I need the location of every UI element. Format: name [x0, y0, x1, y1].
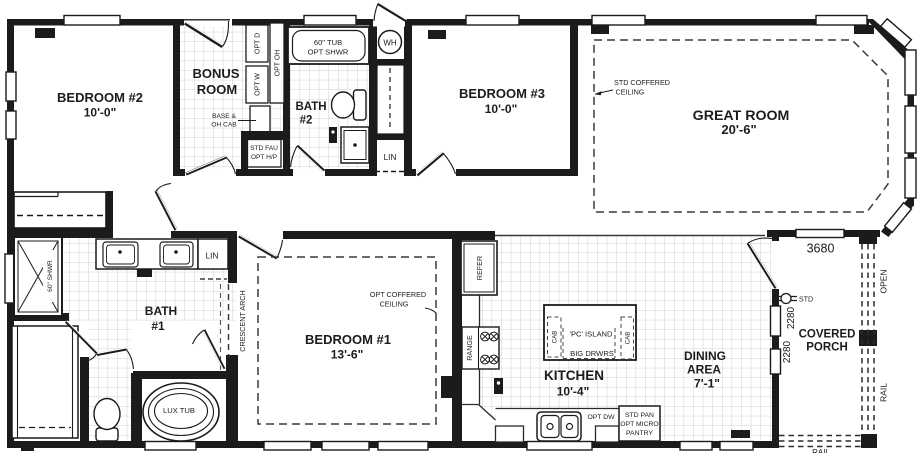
svg-text:LUX TUB: LUX TUB [163, 406, 195, 415]
svg-text:2280: 2280 [782, 340, 793, 363]
svg-text:CAB: CAB [552, 331, 559, 344]
svg-text:BATH: BATH [145, 304, 177, 318]
svg-text:RAIL: RAIL [812, 448, 830, 453]
svg-text:60" SHWR: 60" SHWR [47, 260, 54, 292]
svg-text:ROOM: ROOM [197, 82, 237, 97]
svg-text:STD PAN: STD PAN [625, 412, 654, 419]
svg-text:#1: #1 [151, 319, 165, 333]
svg-text:BEDROOM #3: BEDROOM #3 [459, 86, 545, 101]
svg-text:DINING: DINING [684, 349, 726, 363]
svg-text:13'-6": 13'-6" [331, 348, 364, 362]
svg-text:STD COFFERED: STD COFFERED [614, 78, 670, 87]
svg-text:20'-6": 20'-6" [721, 122, 756, 137]
svg-text:3680: 3680 [807, 242, 835, 256]
svg-text:OPEN: OPEN [879, 269, 889, 293]
svg-text:LIN: LIN [384, 153, 397, 162]
svg-text:OPT OH: OPT OH [275, 50, 282, 77]
svg-text:CRESCENT ARCH: CRESCENT ARCH [238, 290, 247, 351]
svg-text:'PC' ISLAND: 'PC' ISLAND [570, 330, 614, 339]
svg-text:PANTRY: PANTRY [626, 430, 653, 437]
svg-text:60" TUB: 60" TUB [314, 38, 342, 47]
svg-text:OPT DW: OPT DW [587, 414, 615, 421]
svg-text:OPT D: OPT D [255, 33, 262, 54]
svg-text:CAB: CAB [625, 332, 632, 345]
svg-text:LIN: LIN [206, 252, 219, 261]
svg-text:AREA: AREA [687, 363, 721, 377]
svg-text:OPT MICRO: OPT MICRO [620, 421, 658, 428]
svg-text:KITCHEN: KITCHEN [544, 368, 604, 383]
svg-text:BEDROOM #2: BEDROOM #2 [57, 90, 143, 105]
svg-text:OH CAB: OH CAB [211, 122, 237, 129]
svg-text:CEILING: CEILING [616, 88, 645, 97]
svg-text:BONUS: BONUS [193, 66, 240, 81]
svg-text:#2: #2 [300, 115, 313, 127]
svg-text:RAIL: RAIL [879, 383, 889, 402]
svg-text:OPT COFFERED: OPT COFFERED [370, 290, 426, 299]
svg-text:WH: WH [383, 39, 397, 48]
svg-text:10'-0": 10'-0" [485, 102, 518, 116]
svg-text:REFER: REFER [475, 256, 484, 280]
svg-text:COVERED: COVERED [799, 329, 856, 341]
svg-text:7'-1": 7'-1" [694, 377, 720, 391]
svg-text:2280: 2280 [786, 306, 797, 329]
svg-text:PORCH: PORCH [806, 342, 848, 354]
svg-text:OPT W: OPT W [255, 73, 262, 96]
svg-text:CEILING: CEILING [380, 300, 409, 309]
svg-text:10'-0": 10'-0" [84, 106, 117, 120]
svg-text:RANGE: RANGE [465, 335, 474, 361]
svg-text:STD FAU: STD FAU [250, 145, 278, 152]
svg-text:BEDROOM #1: BEDROOM #1 [305, 332, 391, 347]
svg-text:BIG DRWRS: BIG DRWRS [570, 349, 614, 358]
svg-text:STD: STD [799, 295, 813, 304]
svg-text:10'-4": 10'-4" [557, 385, 590, 399]
svg-text:BASE &: BASE & [212, 113, 236, 120]
svg-text:BATH: BATH [295, 101, 326, 113]
svg-text:OPT SHWR: OPT SHWR [308, 48, 349, 57]
svg-text:OPT H/P: OPT H/P [251, 154, 278, 161]
